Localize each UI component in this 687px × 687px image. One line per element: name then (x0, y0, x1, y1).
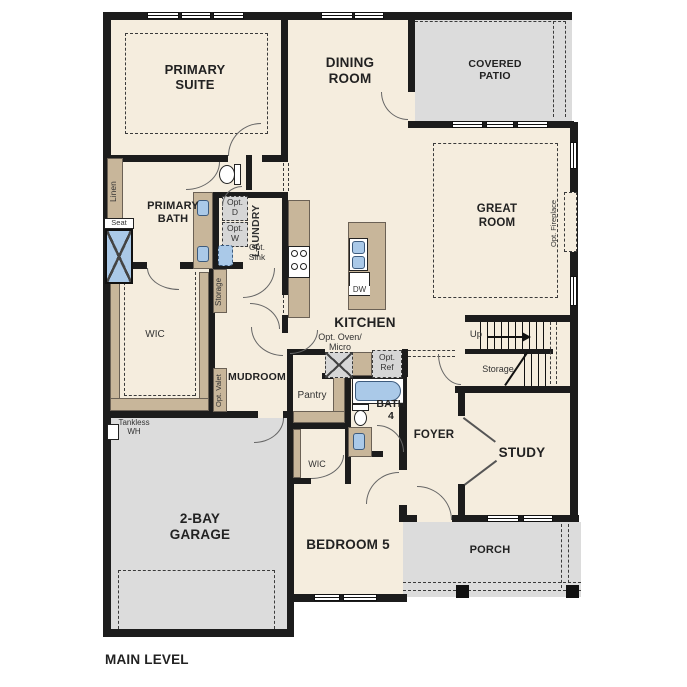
wall-right-main (570, 122, 578, 522)
window-bedroom5-1 (314, 594, 340, 601)
window-suite-2 (181, 12, 211, 19)
wall-wic5-bottom (287, 478, 311, 484)
label-study: STUDY (492, 445, 552, 461)
wall-stairs-bottom (455, 386, 578, 393)
label-porch: PORCH (465, 544, 515, 557)
wall-garage-top-a (103, 411, 258, 418)
window-patio-2 (486, 121, 514, 128)
window-greatroom-2 (570, 276, 577, 306)
stairs-dashed-a (550, 322, 551, 384)
opt-fireplace-box (564, 192, 577, 252)
label-primary-bath: PRIMARY BATH (138, 200, 208, 226)
window-dining-1 (321, 12, 353, 19)
bath4-sink (353, 433, 365, 450)
bath4-toilet-bowl (354, 410, 367, 426)
window-study-2 (523, 515, 553, 522)
porch-post-right (566, 585, 579, 598)
label-wic-primary: WIC (135, 329, 175, 340)
primary-toilet-tank (234, 164, 241, 185)
label-pantry: Pantry (290, 390, 334, 401)
label-opt-oven-micro: Opt. Oven/ Micro (312, 332, 368, 352)
wall-wc-right (246, 155, 252, 190)
opening-dining-hall-a (283, 163, 284, 191)
wall-stairs-top (465, 315, 578, 322)
primary-toilet-bowl (219, 165, 235, 184)
window-study-1 (487, 515, 519, 522)
porch-dashed-b (403, 590, 581, 591)
opening-dining-hall-b (288, 163, 289, 191)
window-suite-3 (213, 12, 244, 19)
window-suite-1 (147, 12, 179, 19)
plan-title: MAIN LEVEL (105, 652, 235, 668)
label-tankless-wh: Tankless WH (114, 419, 154, 437)
label-storage-laundry: Storage (214, 272, 227, 312)
label-mudroom: MUDROOM (225, 371, 289, 383)
burner-2 (300, 250, 307, 257)
stairs-dashed-b (556, 322, 557, 384)
label-foyer: FOYER (410, 429, 458, 443)
window-greatroom-1 (570, 142, 577, 169)
label-bath4: BATH 4 (375, 398, 407, 423)
wic5-shelf-left (293, 429, 301, 478)
label-laundry: LAUNDRY (250, 198, 264, 263)
burner-4 (300, 263, 307, 270)
wic-shelf-left (110, 272, 120, 409)
wic-shelf-bottom (110, 398, 209, 411)
pantry-shelf-bottom (293, 411, 345, 423)
window-patio-1 (452, 121, 483, 128)
label-linen: Linen (108, 168, 122, 216)
label-dining-room: DINING ROOM (310, 55, 390, 87)
wall-porch-top-a (399, 515, 417, 522)
wall-study-left-b (458, 484, 465, 522)
label-kitchen: KITCHEN (325, 315, 405, 331)
wall-patio-left (408, 12, 415, 92)
label-primary-suite: PRIMARY SUITE (145, 62, 245, 93)
burner-3 (291, 263, 298, 270)
wic-dash-left (124, 272, 125, 396)
window-bedroom5-2 (343, 594, 377, 601)
stairs-up-arrowhead (522, 332, 531, 342)
window-patio-3 (517, 121, 548, 128)
floor-plan-canvas: Seat Opt. D Opt. W Opt. Sink DW Opt. Ref (0, 0, 687, 687)
wic-shelf-right (199, 272, 209, 409)
opening-corridor-a (283, 295, 284, 313)
opt-laundry-sink (218, 245, 233, 266)
wall-suite-dining-divider (281, 12, 288, 162)
window-dining-2 (354, 12, 384, 19)
dishwasher-label: DW (349, 286, 370, 295)
burner-1 (291, 250, 298, 257)
porch-dashed-c (561, 524, 562, 588)
porch-dashed-d (568, 524, 569, 588)
porch-post-left (456, 585, 469, 598)
wall-study-left-a (458, 392, 465, 416)
primary-sink-2 (197, 246, 209, 262)
label-great-room: GREAT ROOM (462, 203, 532, 230)
seat-label: Seat (111, 218, 126, 227)
cabinet-by-oven (352, 352, 372, 376)
wic-dash-bottom (124, 395, 195, 396)
porch-floor (403, 522, 581, 597)
shower (105, 229, 133, 284)
patio-dashed-inner (553, 21, 554, 117)
wall-bath4-left (345, 371, 351, 429)
label-opt-valet: Opt. Valet (214, 369, 227, 412)
island-sink-basin-1 (352, 241, 365, 254)
wall-garage-bottom (103, 629, 294, 637)
stairs-up-arrow-line (488, 336, 524, 338)
opt-washer-label: Opt. W (223, 224, 247, 243)
label-covered-patio: COVERED PATIO (453, 58, 537, 83)
stairs-lower-treads (524, 354, 550, 386)
label-garage: 2-BAY GARAGE (160, 511, 240, 543)
label-opt-fireplace: Opt. Fireplace (549, 192, 563, 254)
label-up: Up (466, 330, 486, 341)
wic-dash-right (195, 272, 196, 396)
garage-door-dashed-area (118, 570, 275, 629)
label-bedroom5: BEDROOM 5 (303, 537, 393, 553)
label-wic-bed5: WIC (300, 459, 334, 469)
porch-dashed-a (403, 582, 581, 583)
opt-ref-label: Opt. Ref (373, 353, 401, 372)
opening-kitchen-hall-a (408, 350, 455, 351)
opt-oven-micro-box (325, 352, 353, 378)
label-storage-stairs: Storage (476, 364, 520, 374)
seat-label-box: Seat (104, 218, 134, 229)
island-sink-basin-2 (352, 256, 365, 269)
